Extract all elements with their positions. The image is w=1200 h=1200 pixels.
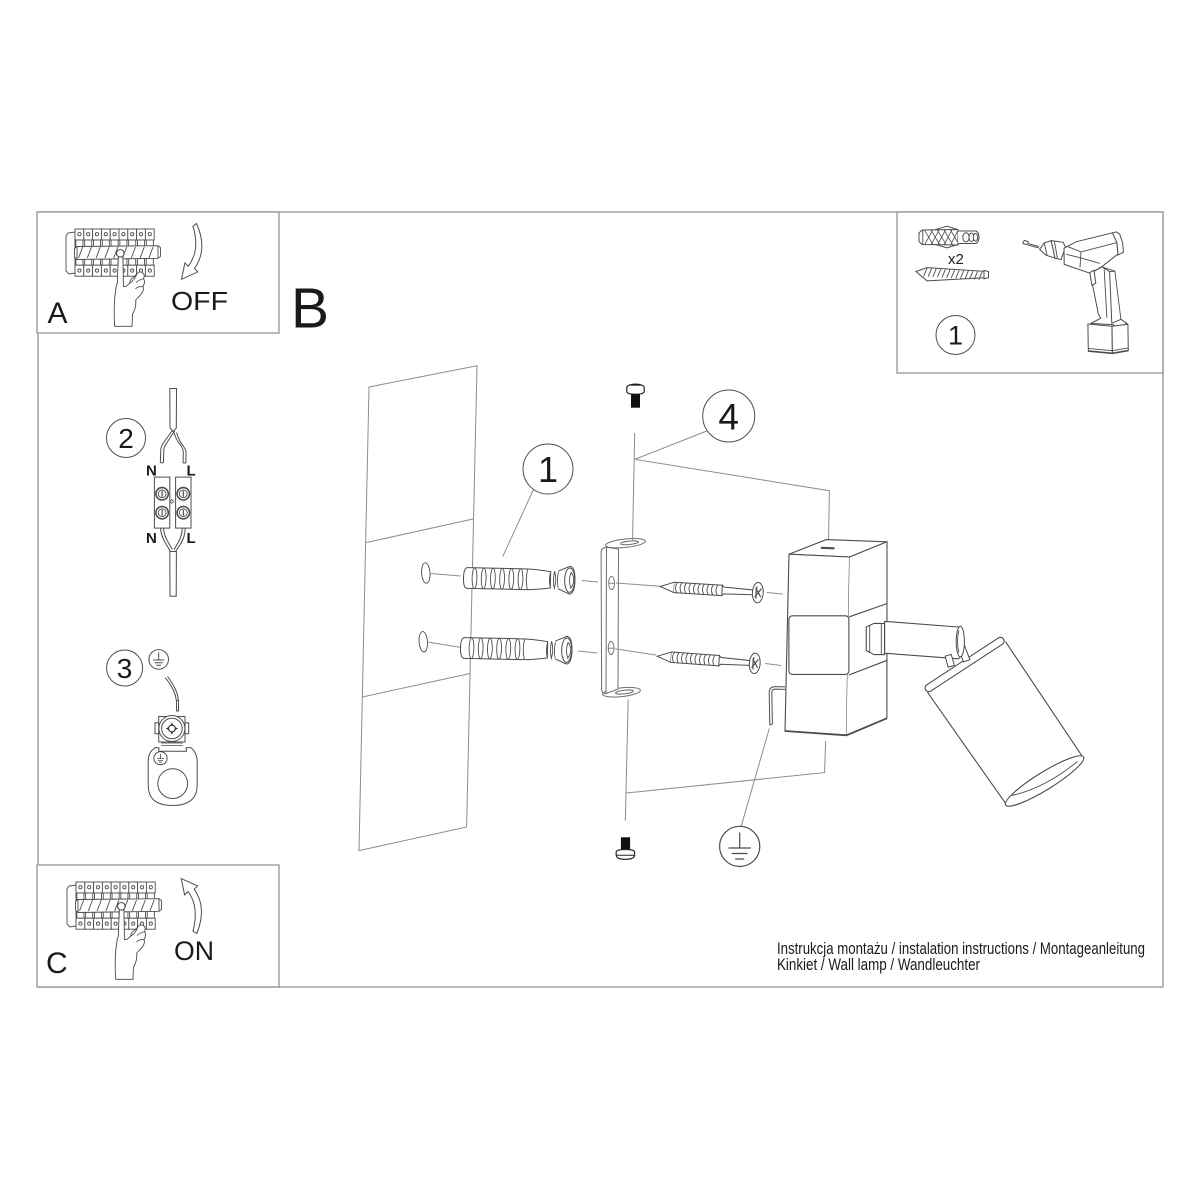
svg-text:N: N — [146, 530, 157, 547]
svg-text:L: L — [187, 530, 196, 547]
svg-text:4: 4 — [718, 396, 739, 437]
svg-text:OFF: OFF — [171, 286, 228, 316]
svg-text:x2: x2 — [948, 251, 964, 268]
svg-text:Kinkiet / Wall lamp / Wandleuc: Kinkiet / Wall lamp / Wandleuchter — [777, 956, 980, 974]
svg-text:B: B — [291, 277, 329, 341]
svg-text:3: 3 — [117, 653, 133, 684]
svg-text:2: 2 — [118, 423, 134, 454]
svg-text:ON: ON — [174, 936, 214, 966]
svg-text:C: C — [46, 947, 68, 980]
svg-text:A: A — [48, 297, 68, 330]
svg-text:1: 1 — [948, 321, 963, 351]
svg-text:1: 1 — [538, 449, 558, 490]
